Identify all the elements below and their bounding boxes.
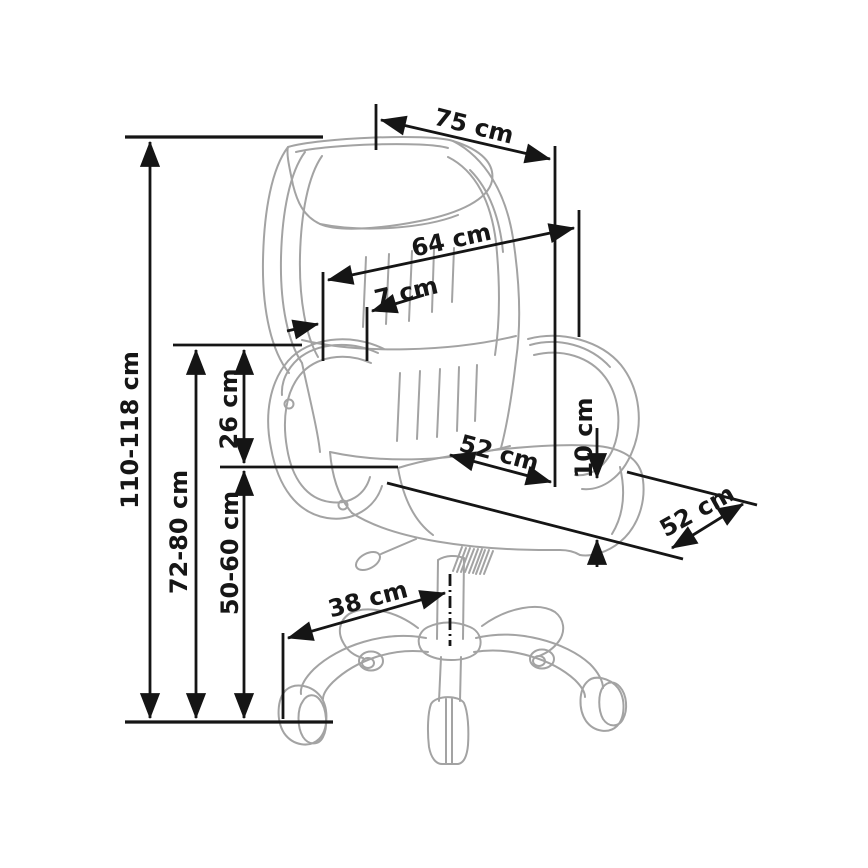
caster-right (580, 678, 626, 731)
seat-right-bulge (580, 480, 644, 555)
dim-label-floor-to-armrest: 72-80 cm (165, 470, 193, 594)
caster-left (279, 686, 327, 745)
chair-dimension-diagram: 110-118 cm 72-80 cm 26 cm 50-60 cm 75 cm… (0, 0, 868, 868)
seat-left-edge (330, 452, 352, 513)
dim-label-seat-to-armrest: 26 cm (215, 369, 243, 450)
backrest-left-panel-edge (302, 363, 320, 452)
armrest-left-inner (285, 357, 371, 503)
extension-line-seat-depth-bottom (387, 483, 683, 559)
dim-label-seat-height: 50-60 cm (216, 491, 244, 615)
backrest-right-wing-inner (448, 157, 499, 355)
headrest-seam (296, 144, 448, 152)
armrest-left-screw (285, 400, 294, 409)
dim-label-seat-thickness: 10 cm (570, 398, 598, 479)
dim-label-headrest-offset: 7 cm (372, 271, 441, 313)
dimension-labels: 110-118 cm 72-80 cm 26 cm 50-60 cm 75 cm… (116, 103, 739, 623)
backrest-left-wing-outer (263, 147, 289, 373)
tilt-lever-paddle (353, 548, 383, 573)
base-leg-front (439, 657, 461, 701)
dim-arrow-headrest-offset-left (287, 324, 318, 331)
caster-front (428, 697, 468, 764)
tilt-lever-stem (381, 539, 416, 554)
backrest-right-panel-edge (501, 360, 516, 448)
base-leg-back-right (482, 607, 563, 656)
headrest (287, 137, 492, 229)
dim-label-overall-height: 110-118 cm (116, 351, 144, 509)
backrest-seam-shoulder (302, 336, 516, 349)
diagram-canvas: 110-118 cm 72-80 cm 26 cm 50-60 cm 75 cm… (0, 0, 868, 868)
gas-lift-boot-hatch (453, 547, 493, 574)
seat-front-left-edge (398, 468, 433, 535)
dim-label-seat-width: 52 cm (456, 429, 541, 477)
